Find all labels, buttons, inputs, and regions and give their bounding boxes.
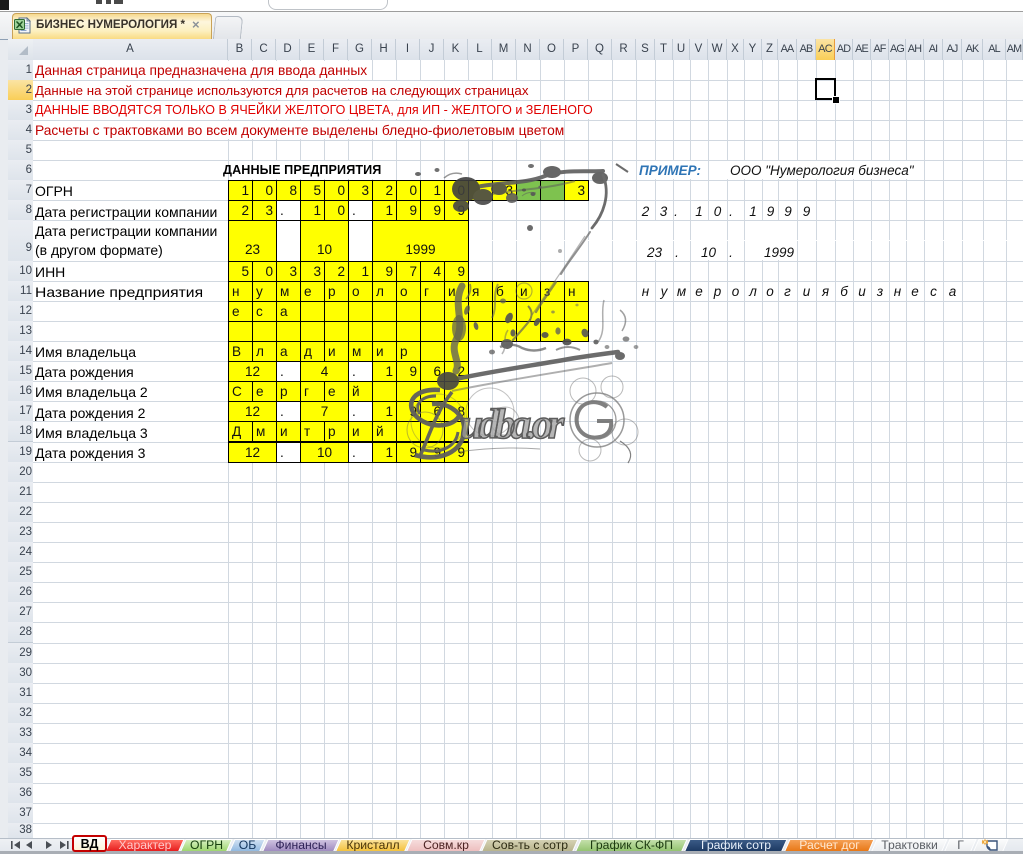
- svg-text:udba.or: udba.or: [460, 402, 565, 448]
